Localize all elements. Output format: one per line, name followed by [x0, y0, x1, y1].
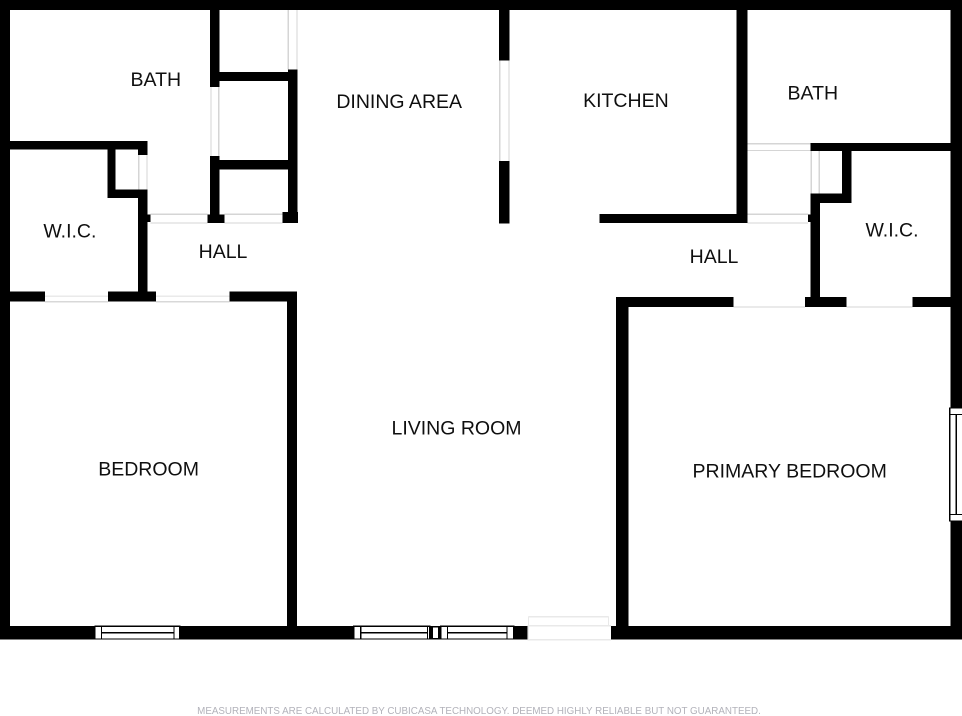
svg-text:PRIMARY BEDROOM: PRIMARY BEDROOM	[693, 461, 887, 483]
svg-text:BEDROOM: BEDROOM	[98, 459, 199, 481]
svg-text:MEASUREMENTS ARE CALCULATED BY: MEASUREMENTS ARE CALCULATED BY CUBICASA …	[197, 706, 761, 716]
svg-text:KITCHEN: KITCHEN	[583, 90, 669, 112]
svg-text:HALL: HALL	[199, 241, 248, 263]
svg-text:W.I.C.: W.I.C.	[865, 220, 918, 242]
svg-text:LIVING ROOM: LIVING ROOM	[391, 418, 521, 440]
svg-text:BATH: BATH	[788, 83, 839, 105]
svg-text:HALL: HALL	[690, 246, 739, 268]
svg-text:W.I.C.: W.I.C.	[43, 221, 96, 243]
svg-text:BATH: BATH	[131, 69, 182, 91]
svg-text:DINING AREA: DINING AREA	[336, 91, 462, 113]
